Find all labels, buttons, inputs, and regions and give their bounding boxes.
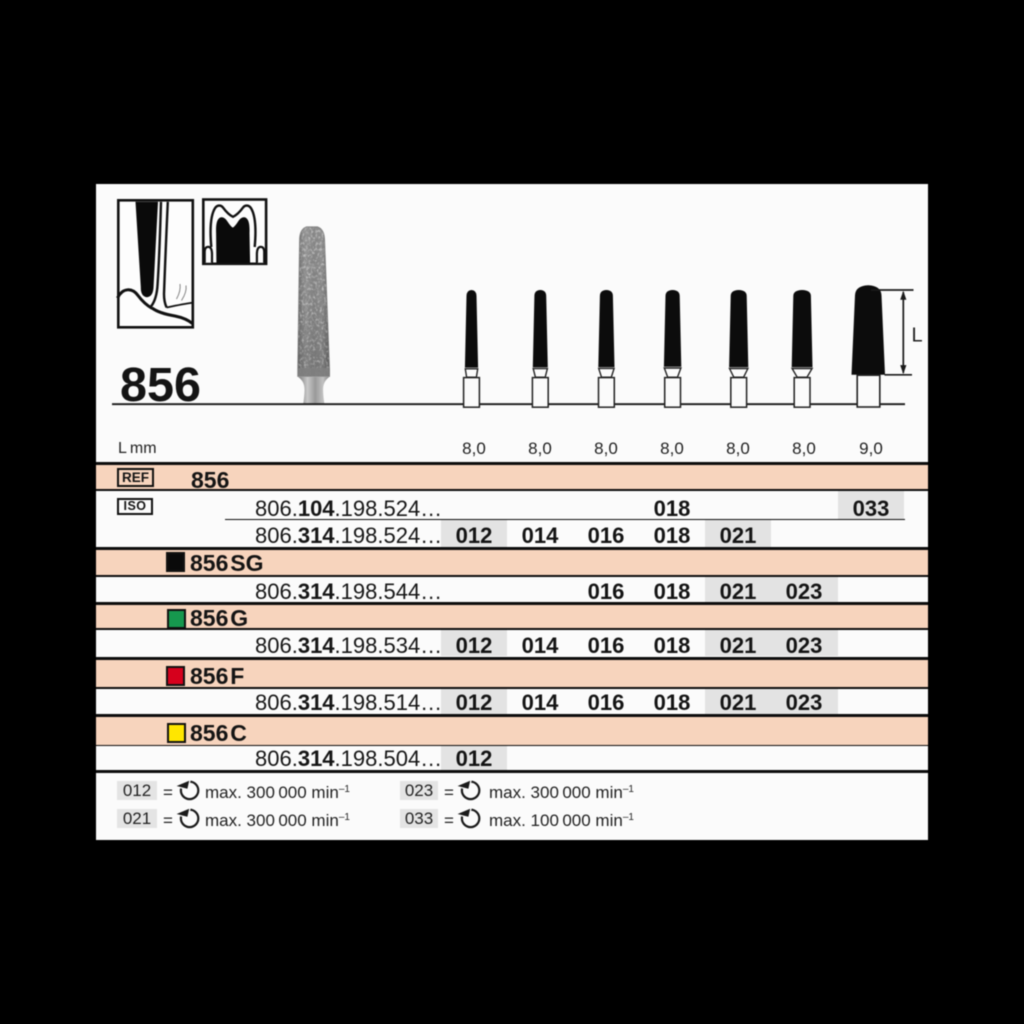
svg-text:L: L bbox=[912, 325, 923, 347]
